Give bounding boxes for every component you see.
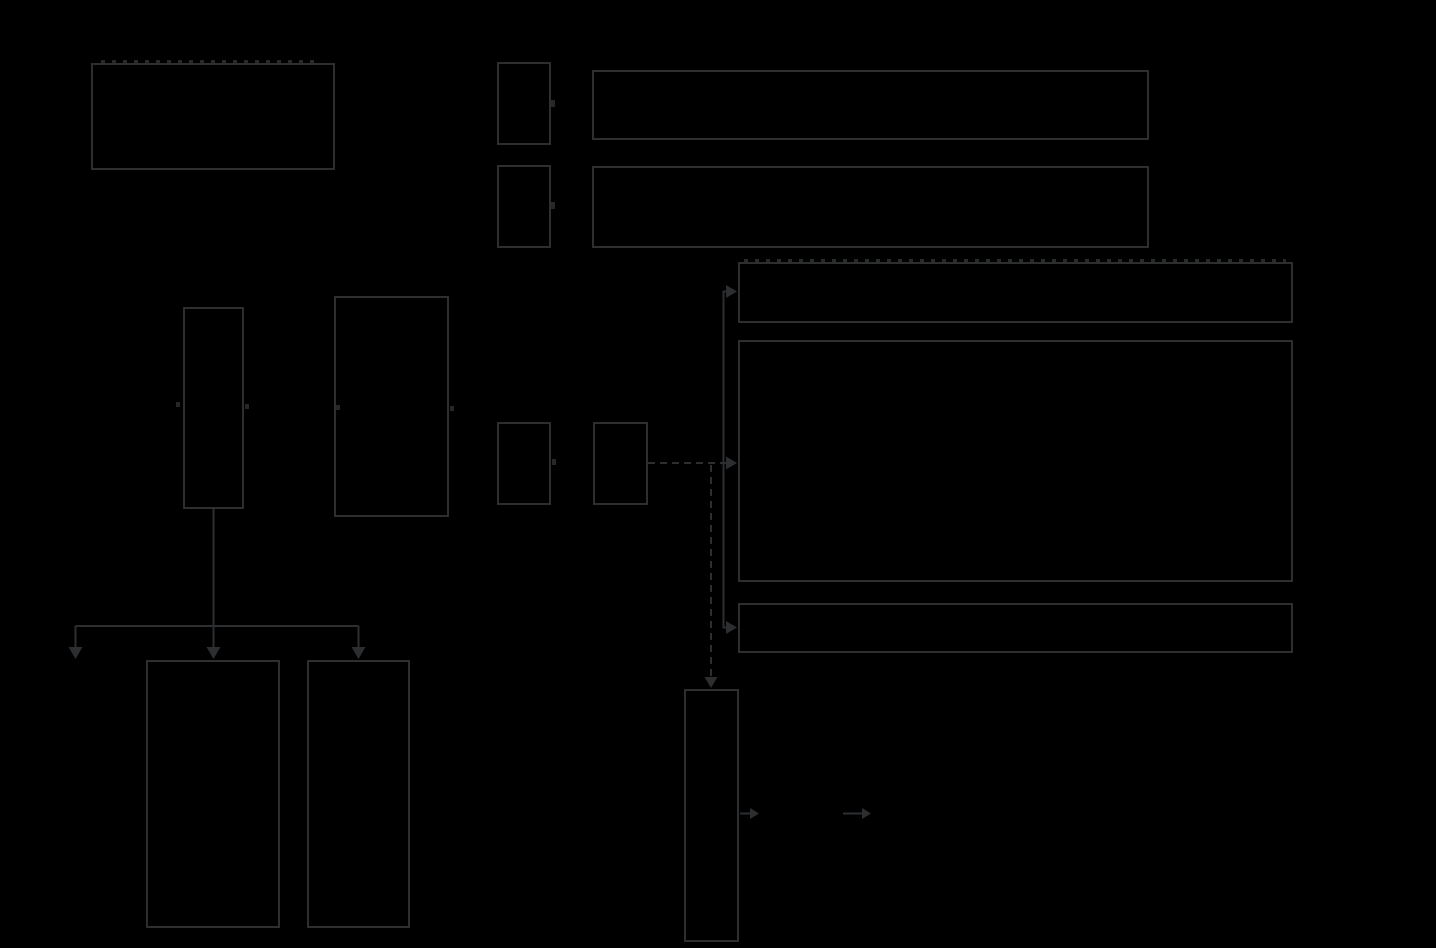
connector-layer: [0, 0, 1436, 948]
arrowhead-right-icon: [862, 808, 871, 819]
arrowhead-down-icon: [705, 677, 718, 688]
arrowhead-right-icon: [726, 457, 737, 470]
arrowhead-right-icon: [726, 285, 737, 298]
right-stack-connector: [724, 292, 727, 628]
diagram-canvas: [0, 0, 1436, 948]
arrowhead-right-icon: [750, 808, 759, 819]
arrowhead-down-icon: [207, 647, 221, 659]
arrowhead-down-icon: [69, 647, 83, 659]
arrowhead-down-icon: [352, 647, 366, 659]
arrowhead-right-icon: [726, 621, 737, 634]
fan-out-connector: [76, 509, 359, 626]
